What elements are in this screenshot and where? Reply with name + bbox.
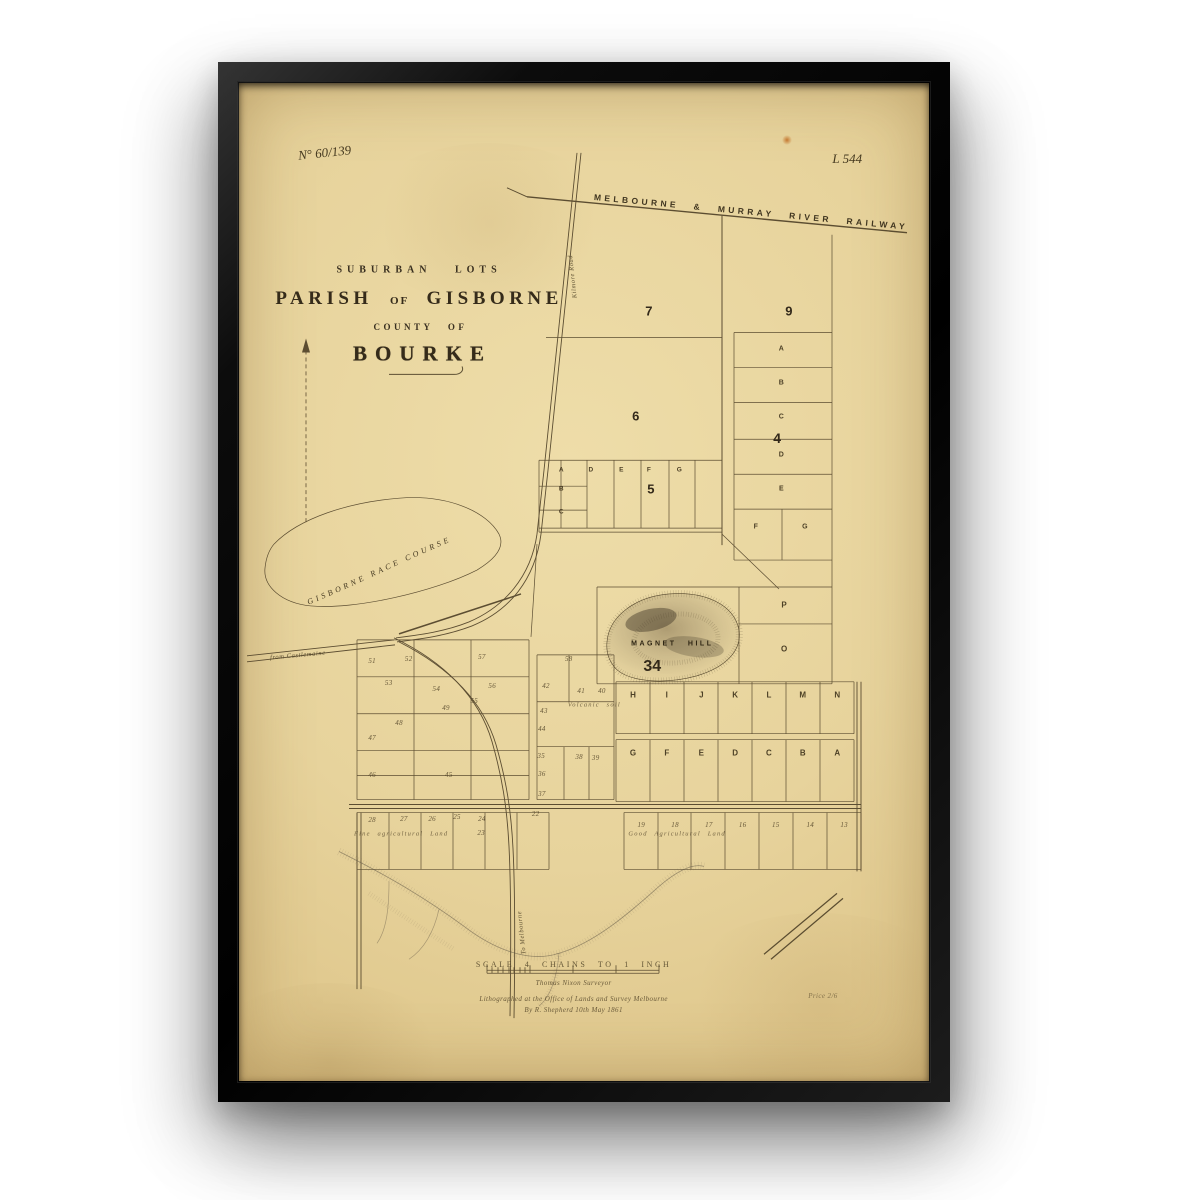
title-of: OF (390, 295, 409, 307)
section5-strip (539, 460, 722, 532)
right-mid-grid (537, 655, 614, 800)
south-west-road (357, 813, 361, 990)
race-course-outline (265, 498, 501, 607)
bottom-right-diagonal (764, 893, 843, 959)
title-parish: PARISH (275, 288, 372, 309)
east-road (857, 682, 861, 872)
picture-frame: GISBORNE RACE COURSE N° 60/139 L 544 MEL… (218, 62, 950, 1102)
race-course-label: GISBORNE RACE COURSE (306, 535, 453, 607)
magnet-hill-label: MAGNET HILL (631, 640, 713, 647)
castlemaine-road (247, 594, 521, 662)
north-arrow (302, 338, 310, 522)
scale-title: SCALE 4 CHAINS TO 1 INCH (476, 960, 671, 969)
title-bourke: BOURKE (353, 342, 492, 367)
product-photo: { "map": { "plate_no": "N° 60/139", "pla… (0, 0, 1200, 1200)
title-county-of: COUNTY OF (374, 322, 468, 332)
map-linework: GISBORNE RACE COURSE (239, 83, 929, 1081)
title-suburban-lots: SUBURBAN LOTS (336, 264, 501, 275)
title-gisborne: GISBORNE (427, 288, 563, 309)
plate-reference: L 544 (832, 151, 862, 167)
race-course-label-text: GISBORNE RACE COURSE (306, 535, 453, 607)
surveyor-credit: Thomas Nixon Surveyor (536, 979, 612, 987)
lithography-credit-line2: By R. Shepherd 10th May 1861 (524, 1006, 622, 1014)
title-parish-of-gisborne: PARISH OF GISBORNE (275, 288, 562, 310)
map-paper: GISBORNE RACE COURSE N° 60/139 L 544 MEL… (239, 83, 929, 1081)
bottom-road (349, 805, 861, 809)
lithography-credit-line1: Lithographed at the Office of Lands and … (479, 995, 667, 1003)
section4-strips (734, 333, 832, 561)
letter-rows (616, 682, 854, 802)
price-mark: Price 2/6 (808, 992, 837, 1000)
magnet-hill (607, 594, 740, 681)
title-underline (389, 366, 463, 374)
bottom-lot-rows (357, 813, 861, 870)
kilmore-road (396, 153, 581, 642)
section-number-34: 34 (643, 658, 661, 676)
left-lot-grid (357, 640, 529, 800)
